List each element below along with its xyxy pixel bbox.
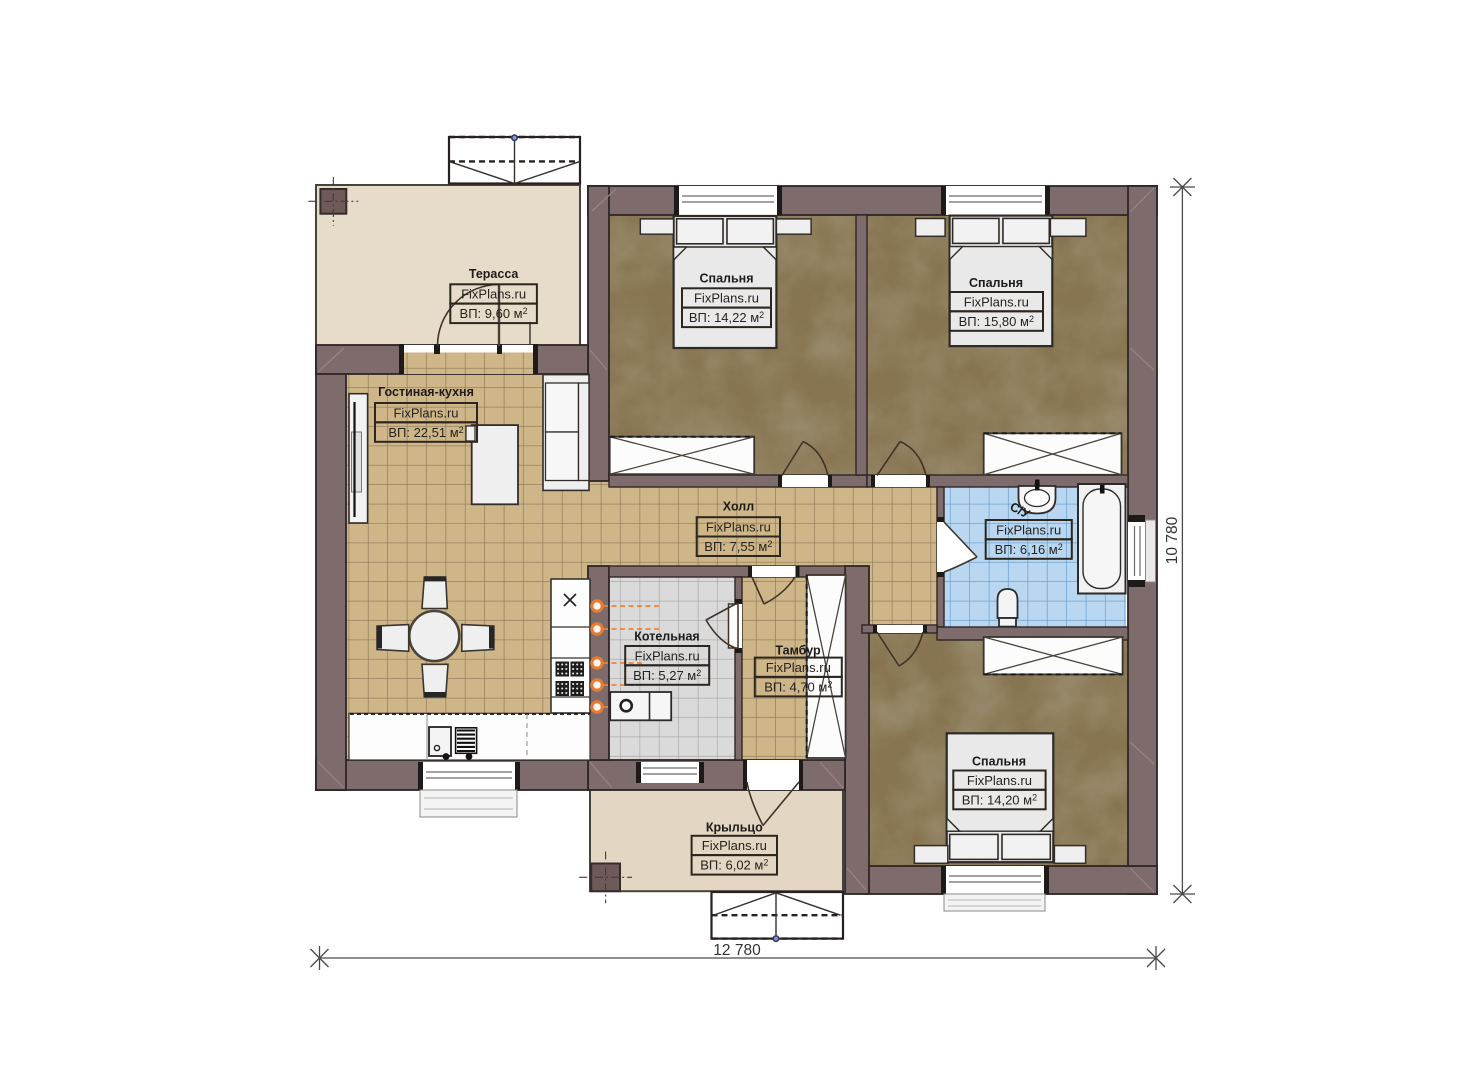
- svg-text:ВП: 6,02 м2: ВП: 6,02 м2: [700, 858, 768, 873]
- svg-text:Тамбур: Тамбур: [775, 644, 821, 658]
- svg-text:Спальня: Спальня: [969, 276, 1023, 290]
- svg-text:ВП: 15,80 м2: ВП: 15,80 м2: [959, 314, 1034, 329]
- svg-text:FixPlans.ru: FixPlans.ru: [766, 660, 831, 675]
- svg-text:ВП: 4,70 м2: ВП: 4,70 м2: [764, 679, 832, 694]
- svg-text:FixPlans.ru: FixPlans.ru: [706, 520, 771, 535]
- svg-text:FixPlans.ru: FixPlans.ru: [996, 522, 1061, 537]
- svg-text:ВП: 14,20 м2: ВП: 14,20 м2: [962, 792, 1037, 807]
- svg-text:Крыльцо: Крыльцо: [706, 821, 763, 835]
- svg-text:10 780: 10 780: [1164, 516, 1181, 564]
- svg-text:FixPlans.ru: FixPlans.ru: [635, 648, 700, 663]
- svg-text:Спальня: Спальня: [700, 272, 754, 286]
- svg-text:ВП: 6,16 м2: ВП: 6,16 м2: [995, 542, 1063, 557]
- svg-text:Гостиная-кухня: Гостиная-кухня: [378, 385, 474, 399]
- svg-text:ВП: 9,60 м2: ВП: 9,60 м2: [460, 306, 528, 321]
- svg-text:Котельная: Котельная: [634, 630, 699, 644]
- svg-text:12 780: 12 780: [713, 942, 761, 959]
- svg-text:FixPlans.ru: FixPlans.ru: [694, 291, 759, 306]
- svg-text:ВП: 14,22 м2: ВП: 14,22 м2: [689, 310, 764, 325]
- svg-text:FixPlans.ru: FixPlans.ru: [702, 838, 767, 853]
- svg-text:ВП: 7,55 м2: ВП: 7,55 м2: [704, 539, 772, 554]
- svg-text:ВП: 5,27 м2: ВП: 5,27 м2: [633, 668, 701, 683]
- svg-text:Спальня: Спальня: [972, 755, 1026, 769]
- svg-text:Холл: Холл: [723, 500, 754, 514]
- svg-text:ВП: 22,51 м2: ВП: 22,51 м2: [388, 425, 463, 440]
- svg-text:FixPlans.ru: FixPlans.ru: [393, 405, 458, 420]
- svg-text:FixPlans.ru: FixPlans.ru: [964, 294, 1029, 309]
- svg-text:Терасса: Терасса: [469, 267, 520, 281]
- svg-text:FixPlans.ru: FixPlans.ru: [967, 773, 1032, 788]
- svg-text:FixPlans.ru: FixPlans.ru: [461, 287, 526, 302]
